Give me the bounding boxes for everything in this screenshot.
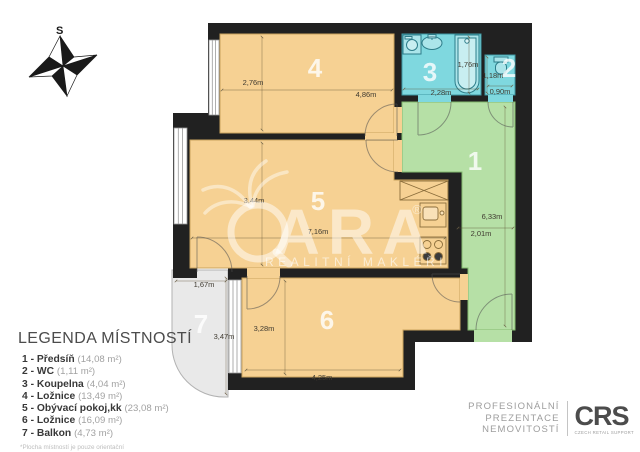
dim-room2-a: 1,18m: [483, 71, 504, 80]
legend-item-7: 7 - Balkon (4,73 m²): [22, 428, 192, 440]
compass-north-label: S: [56, 25, 63, 37]
room-7-number: 7: [194, 309, 208, 339]
legend-footnote: *Plocha místností je pouze orientační: [20, 444, 192, 451]
dim-room6-b: 4,25m: [312, 373, 333, 382]
room-6-number: 6: [320, 305, 334, 335]
washing-machine-icon: [403, 35, 421, 54]
dim-room7-a: 1,67m: [194, 280, 215, 289]
window-room6-balcony-icon: [229, 280, 241, 373]
window-room5-icon: [174, 128, 187, 224]
dim-room3-a: 1,76m: [458, 60, 479, 69]
footer-divider: [567, 401, 568, 436]
dim-room1-a: 6,33m: [482, 212, 503, 221]
legend-item-5: 5 - Obývací pokoj,kk (23,08 m²): [22, 403, 192, 415]
dim-room4-b: 4,86m: [356, 90, 377, 99]
dim-room2-b: 0,90m: [490, 87, 511, 96]
room-1-number: 1: [468, 146, 482, 176]
room-6-floor: [242, 278, 460, 377]
watermark-registered: ®: [412, 202, 422, 217]
dim-room3-b: 2,28m: [431, 88, 452, 97]
dim-room4-a: 2,76m: [243, 78, 264, 87]
room-4-number: 4: [308, 53, 323, 83]
compass-icon: S: [29, 25, 97, 96]
dim-room1-b: 2,01m: [471, 229, 492, 238]
watermark-subtitle: REALITNÍ MAKLÉŘI: [265, 254, 447, 269]
footer-tagline: PROFESIONÁLNÍ PREZENTACE NEMOVITOSTÍ: [468, 401, 559, 436]
legend-item-1: 1 - Předsíň (14,08 m²): [22, 354, 192, 366]
crs-logo: CRS CZECH RETAIL SUPPORT: [575, 403, 634, 435]
legend-item-3: 3 - Koupelna (4,04 m²): [22, 379, 192, 391]
room-3-number: 3: [423, 57, 437, 87]
footer-branding: PROFESIONÁLNÍ PREZENTACE NEMOVITOSTÍ CRS…: [468, 401, 634, 436]
window-room4-icon: [209, 40, 219, 115]
dim-room6-a: 3,28m: [254, 324, 275, 333]
legend: LEGENDA MÍSTNOSTÍ 1 - Předsíň (14,08 m²)…: [18, 330, 192, 451]
dim-room7-b: 3,47m: [214, 332, 235, 341]
legend-item-2: 2 - WC (1,11 m²): [22, 366, 192, 378]
legend-item-6: 6 - Ložnice (16,09 m²): [22, 415, 192, 427]
legend-title: LEGENDA MÍSTNOSTÍ: [18, 330, 192, 348]
floor-plan-page: 6,33m 2,01m 1,18m 0,90m 1,76m 2,28m 2,76…: [0, 0, 640, 452]
room-2-number: 2: [502, 53, 516, 83]
legend-item-4: 4 - Ložnice (13,49 m²): [22, 391, 192, 403]
